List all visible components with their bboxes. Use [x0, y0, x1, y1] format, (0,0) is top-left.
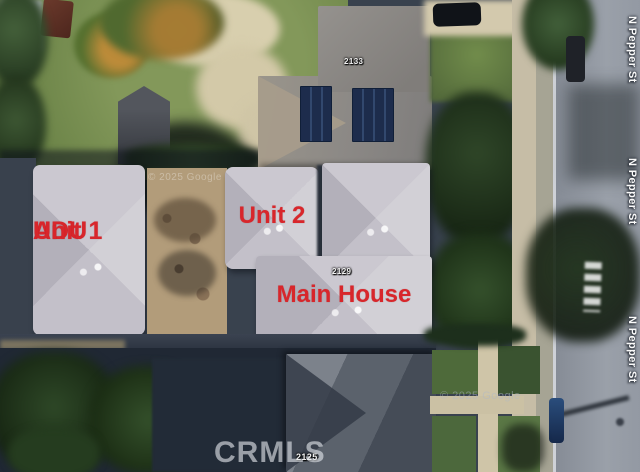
hedge	[424, 324, 526, 346]
solar-panel-array	[300, 86, 332, 142]
painted-road-marking	[583, 262, 602, 313]
parked-car-blue	[549, 398, 564, 443]
street-label-n-pepper-st: N Pepper St	[620, 16, 638, 83]
house-2133-roof-wing	[318, 6, 430, 92]
aerial-photo: ADU Unit 1 Unit 2 Main House N Pepper St…	[0, 0, 640, 472]
address-label-2129: 2129	[332, 267, 351, 276]
street-label-n-pepper-st: N Pepper St	[620, 316, 638, 383]
street-label-n-pepper-st: N Pepper St	[620, 158, 638, 225]
solar-panel-array	[352, 88, 394, 142]
parked-car	[433, 2, 482, 27]
yard-debris	[154, 198, 216, 242]
adu-unit1-roof	[33, 165, 145, 335]
parked-car	[566, 36, 585, 82]
front-lawn	[432, 350, 478, 394]
yard-debris	[158, 250, 216, 296]
annotation-unit2: Unit 2	[222, 203, 322, 229]
annotation-adu-line2: Unit 1	[33, 218, 102, 245]
front-lawn	[432, 416, 476, 472]
side-driveway	[0, 158, 36, 350]
tree-shadow	[502, 424, 544, 472]
streetlight	[616, 418, 624, 426]
address-label-2133: 2133	[344, 57, 363, 66]
annotation-main-house: Main House	[254, 282, 434, 308]
imagery-copyright-watermark: © 2025 Google	[148, 172, 222, 183]
imagery-copyright-watermark: © 2025 Google	[440, 390, 521, 402]
crmls-watermark: CRMLS	[214, 436, 326, 470]
bush	[8, 428, 100, 472]
